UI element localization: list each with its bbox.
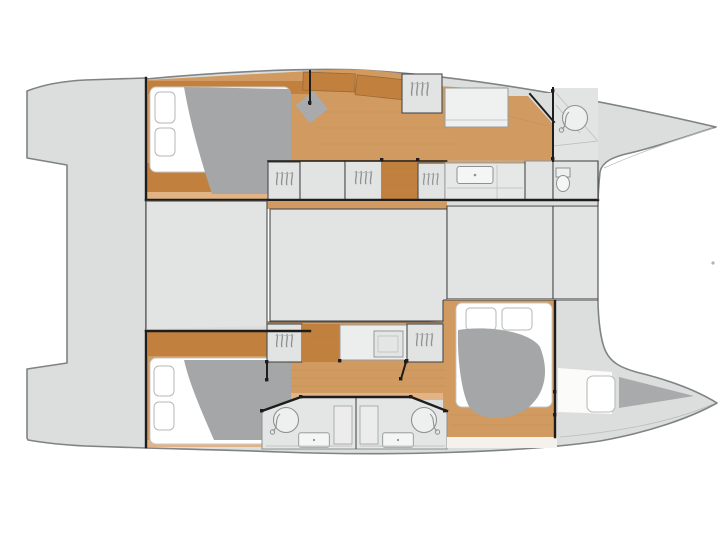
vanity-counter [445,163,525,200]
saloon-blocks [146,201,715,332]
wardrobe-3-box [418,163,445,200]
shower-door-left [334,406,352,444]
guest-bathrooms [260,395,447,449]
floorplan-canvas [0,0,728,546]
guest-aft-pillow-2 [154,402,174,430]
aft-deck [27,78,146,448]
wardrobe-4-box [267,324,302,362]
companionway-stairs-starboard [302,324,340,362]
saloon-block-1 [146,201,267,332]
shower-door-right [360,406,378,444]
chaise-seat [445,88,508,127]
toilet-icon [556,168,570,192]
saloon-wood-strip [267,201,447,209]
cabinet-1 [300,161,345,200]
wardrobe-5-box [407,324,443,362]
saloon-block-3 [447,206,553,299]
catamaran-floorplan [0,0,728,546]
saloon-block-2 [270,209,447,321]
wardrobe-2-box [345,161,382,200]
sink-icon [299,433,330,447]
sink-icon [383,433,414,447]
fwd-cabin-step-strip [447,437,557,448]
rigging-marker [711,261,714,264]
owner-bed-pillow-2 [155,128,175,156]
owner-bed-pillow-1 [155,92,175,123]
guest-aft-pillow-1 [154,366,174,396]
owner-inboard-row [268,161,598,200]
bow-hatch [587,376,615,412]
cabinet-2 [525,161,553,200]
hull-port [146,69,716,206]
aft-deck-shape [27,78,146,448]
vanity-desk [340,325,407,360]
toilet-room-port [553,161,598,200]
companionway-stairs-port [382,162,418,200]
guest-fwd-pillow-2 [502,308,532,330]
guest-inboard-row [267,324,443,362]
saloon-block-4 [553,206,598,299]
sink-icon [457,167,493,184]
wardrobe-1-box [268,162,300,200]
wardrobe-forward [402,74,442,113]
guest-fwd-pillow-1 [466,308,496,330]
